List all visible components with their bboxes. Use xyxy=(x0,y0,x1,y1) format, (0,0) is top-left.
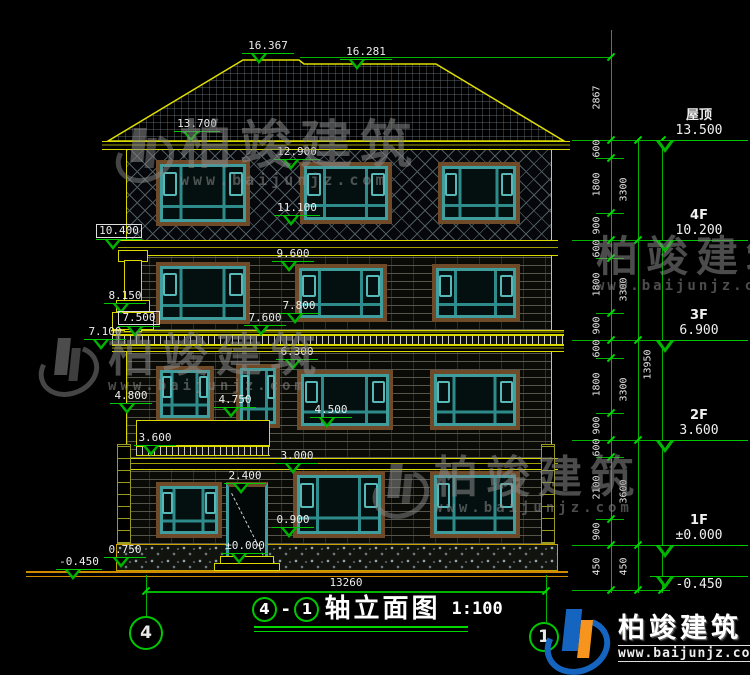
dim-13950: 13950 xyxy=(643,341,654,389)
drawing-title: 4 - 1 轴立面图 1:100 xyxy=(252,596,503,622)
title-axis-start: 4 xyxy=(252,597,277,622)
window-3f-right xyxy=(432,264,520,322)
label-7600: 7.600 xyxy=(244,312,286,326)
label-4800: 4.800 xyxy=(110,390,152,404)
dim-2867: 2867 xyxy=(592,76,603,120)
dim-450a: 450 xyxy=(592,545,603,589)
title-text: 轴立面图 xyxy=(324,596,440,622)
band-4f-3f xyxy=(118,240,558,256)
window-2f-left xyxy=(156,366,214,422)
dim-1800b: 1800 xyxy=(592,263,603,307)
label-9600: 9.600 xyxy=(272,248,314,262)
window-4f-left xyxy=(156,160,250,226)
plinth xyxy=(116,544,558,571)
label-0750: 0.750 xyxy=(104,544,146,558)
elevation-drawing-canvas: 16.367 16.281 13.700 12.900 11.100 10.40… xyxy=(0,0,750,675)
label-minus-0450-left: -0.450 xyxy=(56,556,102,570)
label-7100: 7.100 xyxy=(84,326,126,340)
quoin-right xyxy=(541,444,555,544)
label-7500: 7.500 xyxy=(118,311,160,327)
label-10400: 10.400 xyxy=(96,224,142,240)
logo-website-url: www.baijunjz.com xyxy=(618,645,750,662)
dim-3300a: 3300 xyxy=(619,168,630,212)
bottom-dim-line xyxy=(146,591,546,593)
dim-13260: 13260 xyxy=(318,577,374,589)
quoin-left xyxy=(117,444,131,544)
title-underline-1 xyxy=(254,626,468,628)
dim-3600: 3600 xyxy=(619,470,630,514)
title-axis-end: 1 xyxy=(294,597,319,622)
label-13700: 13.700 xyxy=(174,118,220,132)
dim-3300b: 3300 xyxy=(619,268,630,312)
peak-elevation-left: 16.367 xyxy=(242,40,294,54)
marker-1f: 1F±0.000 xyxy=(650,513,748,546)
label-3600: 3.600 xyxy=(134,432,176,446)
title-underline-2 xyxy=(254,631,468,632)
bottom-ext-left xyxy=(146,575,147,616)
dim-1800c: 1800 xyxy=(592,363,603,407)
watermark-icon-left xyxy=(38,336,98,392)
dim-chain-line-mid xyxy=(638,138,639,593)
label-2400: 2.400 xyxy=(224,470,266,484)
roof-eave-band xyxy=(102,141,570,150)
label-3000: 3.000 xyxy=(276,450,318,464)
marker-roof: 屋顶13.500 xyxy=(650,108,748,141)
window-1f-right xyxy=(430,471,520,538)
logo-brand-name: 柏竣建筑 xyxy=(618,615,750,643)
window-4f-right xyxy=(438,162,520,224)
label-0900: 0.900 xyxy=(272,514,314,528)
marker-2f: 2F3.600 xyxy=(650,408,748,441)
company-logo: 柏竣建筑 www.baijunjz.com xyxy=(544,608,750,668)
band-2f-1f xyxy=(120,458,558,470)
dim-450b: 450 xyxy=(619,545,630,589)
label-6300: 6.300 xyxy=(276,346,318,360)
window-3f-left xyxy=(156,262,250,324)
axis-bubble-4: 4 xyxy=(129,616,163,650)
cornice-bottom xyxy=(112,345,564,352)
marker-minus-0450: -0.450 xyxy=(650,574,748,592)
title-dash: - xyxy=(282,599,289,620)
window-2f-right xyxy=(430,370,520,430)
window-2f-center xyxy=(297,370,393,430)
window-1f-left xyxy=(156,482,222,538)
title-scale: 1:100 xyxy=(452,599,503,619)
label-12900: 12.900 xyxy=(274,146,320,160)
dim-600d: 600 xyxy=(592,426,603,470)
dim-2100: 2100 xyxy=(592,466,603,510)
dim-3300c: 3300 xyxy=(619,368,630,412)
label-8150: 8.150 xyxy=(104,290,146,304)
ground-line xyxy=(26,571,568,573)
ground-line-2 xyxy=(26,576,568,577)
label-4500: 4.500 xyxy=(310,404,352,418)
logo-building-icon xyxy=(544,608,610,668)
door-step-lower xyxy=(214,563,280,571)
label-11100: 11.100 xyxy=(274,202,320,216)
marker-4f: 4F10.200 xyxy=(650,208,748,241)
label-0000: ±0.000 xyxy=(222,540,268,554)
marker-3f: 3F6.900 xyxy=(650,308,748,341)
peak-elevation-right: 16.281 xyxy=(340,46,392,60)
dim-1800a: 1800 xyxy=(592,163,603,207)
label-4750: 4.750 xyxy=(214,394,256,408)
cornice-dentils xyxy=(112,335,564,345)
